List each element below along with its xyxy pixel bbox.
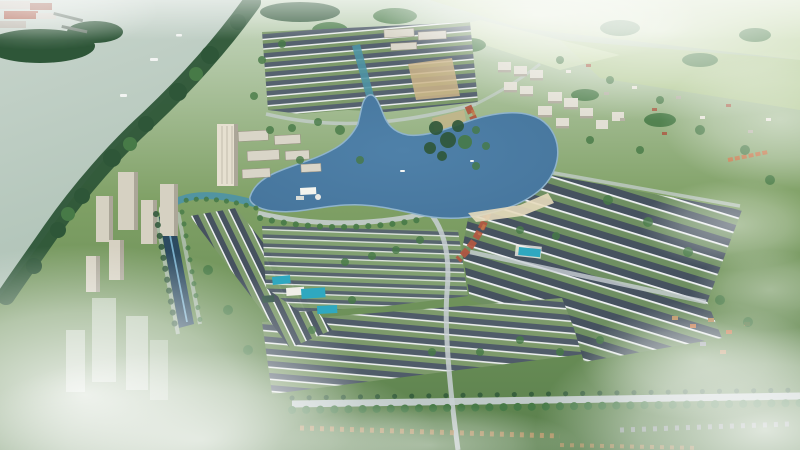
aerial-township-render	[0, 0, 800, 450]
swimming-pool	[317, 305, 337, 314]
swimming-pool	[301, 287, 326, 299]
landmark-tower	[217, 124, 238, 186]
scene-canvas	[0, 0, 800, 450]
